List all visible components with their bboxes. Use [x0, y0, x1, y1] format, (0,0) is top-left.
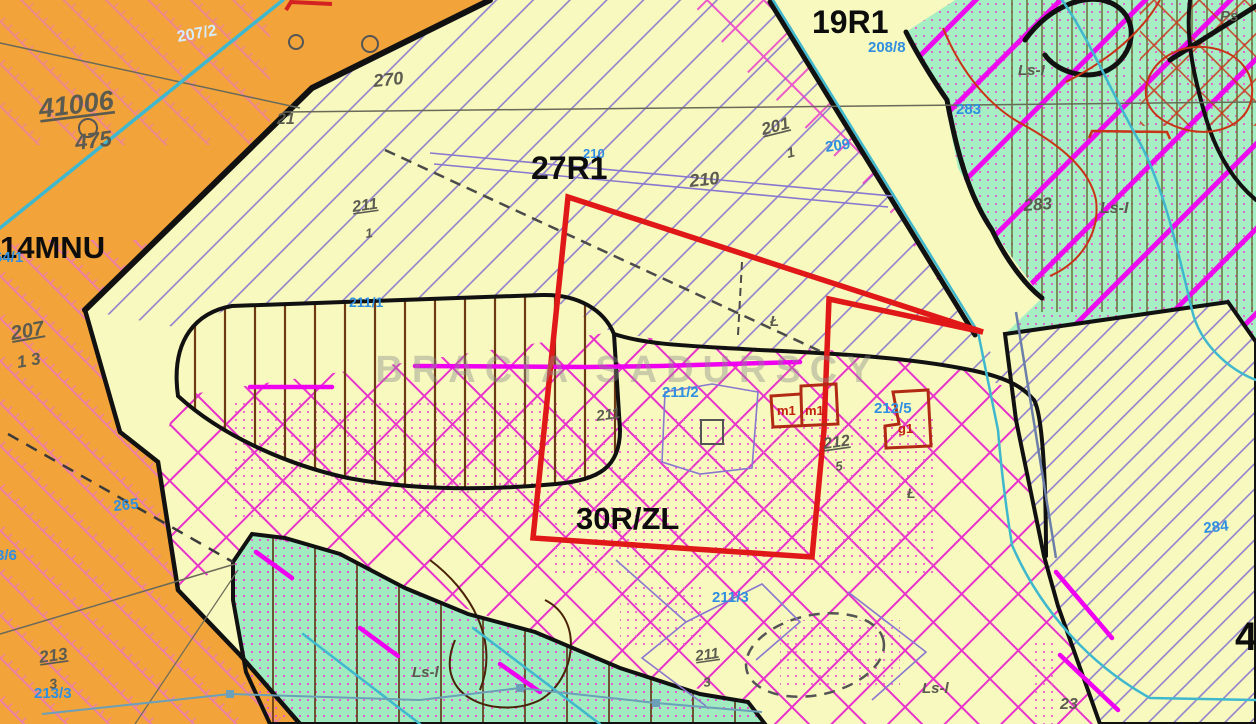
- label-parcel-208-8: 208/8: [868, 39, 906, 56]
- label-zone-4: 4: [1235, 615, 1256, 659]
- label-lu-ls2: Ls-I: [1018, 62, 1046, 79]
- label-parcel-284: 284: [1203, 517, 1230, 537]
- label-lu-ls4: Ls-l: [922, 680, 950, 697]
- label-zone-19r1: 19R1: [812, 4, 889, 40]
- label-lu-meadow1: Ł: [769, 313, 779, 330]
- zoning-map-canvas[interactable]: 19R127R114MNU30R/ZL4208/8207/22102092832…: [0, 0, 1256, 724]
- label-lu-ps: Ps: [1220, 8, 1238, 25]
- label-surv-210: 210: [687, 168, 720, 191]
- label-lu-meadow2: Ł: [906, 485, 916, 501]
- label-parcel-210-blue: 210: [583, 146, 605, 161]
- label-zone-30rzl: 30R/ZL: [576, 501, 679, 536]
- label-lu-ls3: Ls-l: [412, 664, 440, 681]
- label-surv-21: 21: [276, 111, 295, 128]
- label-surv-211b: 211: [594, 405, 621, 425]
- label-parcel-211-3: 211/3: [712, 589, 749, 606]
- label-bldg-m1a: m1: [777, 403, 796, 418]
- label-surv-475: 475: [73, 126, 114, 156]
- map-stage: 19R127R114MNU30R/ZL4208/8207/22102092832…: [0, 0, 1256, 724]
- label-parcel-3-6: 3/6: [0, 547, 17, 564]
- label-parcel-209: 209: [824, 136, 851, 156]
- label-parcel-283-blue: 283: [956, 101, 981, 118]
- label-bldg-g1: g1: [898, 421, 913, 436]
- label-surv-270: 270: [371, 68, 404, 91]
- label-parcel-265: 265: [113, 495, 140, 515]
- label-bldg-m1b: m1: [805, 403, 824, 418]
- label-surv-283-gray: 283: [1022, 194, 1053, 215]
- label-watermark: BRACIA SADURSCY: [375, 349, 880, 391]
- label-parcel-212-5: 212/5: [874, 400, 912, 417]
- label-lu-ls1: Ls-I: [1100, 200, 1129, 217]
- label-surv-23: 23: [1059, 696, 1078, 713]
- label-parcel-211-1: 211/1: [349, 294, 383, 310]
- label-parcel-64-1: 64/1: [0, 249, 23, 266]
- label-surv-211c: 211: [693, 645, 720, 665]
